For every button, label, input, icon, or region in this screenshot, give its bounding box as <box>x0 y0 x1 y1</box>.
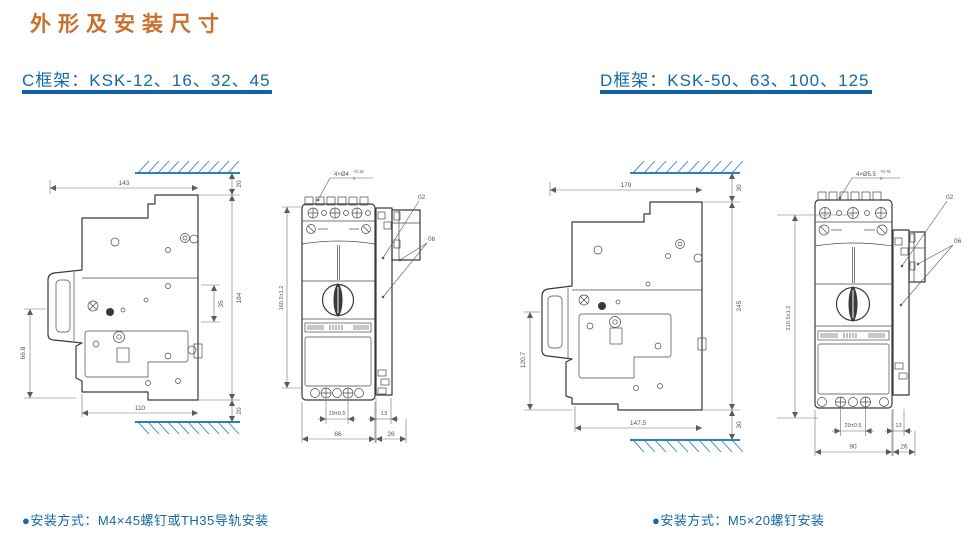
callout-02-label: 02 <box>418 194 426 201</box>
auxiliary-blocks <box>376 208 420 395</box>
d-frame-heading: D框架：KSK-50、63、100、125 <box>600 66 870 91</box>
c-frame-underline <box>22 90 272 94</box>
bottom-terminal-screws <box>818 397 889 407</box>
front-dimensions: 210.5±1.2 29±0.5 13 90 26 <box>777 215 915 456</box>
side-dimensions: 143 20 35 184 66.8 110 20 <box>20 173 243 422</box>
d-frame-underline <box>600 90 872 94</box>
side-dimensions: 179 30 245 120.7 147.5 30 <box>520 173 743 440</box>
setting-strip <box>818 331 889 340</box>
callout-06: 06 <box>382 236 436 298</box>
dim-aux-width: 26 <box>387 431 395 438</box>
dim-front-height: 66.8 <box>20 346 27 359</box>
d-frame-mount-note: ●安装方式：M5×20螺钉安装 <box>652 510 824 529</box>
page-title: 外形及安装尺寸 <box>30 8 226 38</box>
front-dimensions: 160.5±1.2 19±0.5 13 66 26 <box>279 207 406 443</box>
hole-tolerance-lower: 0 <box>353 176 356 181</box>
fixing-screws-row <box>819 225 887 235</box>
breaker-side-outline <box>542 202 706 410</box>
callout-02: 02 <box>382 194 426 259</box>
hole-tolerance-upper: +0.15 <box>353 169 364 174</box>
dim-gap-top: 20 <box>236 180 243 188</box>
c-frame-heading: C框架：KSK-12、16、32、45 <box>22 66 271 91</box>
dim-gap-bottom: 20 <box>236 407 243 415</box>
dim-gap-bottom: 30 <box>736 421 743 429</box>
hole-tolerance-upper: +0.75 <box>880 169 891 174</box>
callout-06-label: 06 <box>428 236 436 243</box>
dim-height: 245 <box>736 300 743 311</box>
wall-hatch-top <box>630 161 743 173</box>
c-frame-front-view: 4×Ø4 +0.15 0 02 06 160.5±1.2 <box>278 148 478 458</box>
wall-hatch-top <box>135 161 240 173</box>
terminal-castellation <box>818 192 881 200</box>
wall-hatch-bottom <box>135 422 240 434</box>
dim-base: 110 <box>135 405 146 412</box>
dim-width: 66 <box>334 431 342 438</box>
dim-clip: 35 <box>218 300 225 308</box>
d-frame-side-view: 179 30 245 120.7 147.5 30 <box>518 138 768 488</box>
fixing-screws-row <box>307 225 371 234</box>
top-terminal-screws <box>308 208 371 218</box>
wall-hatch-bottom <box>630 440 743 452</box>
rotary-handle <box>837 286 870 322</box>
c-frame-side-view: 143 20 35 184 66.8 110 20 <box>18 138 268 478</box>
catalog-page: 外形及安装尺寸 C框架：KSK-12、16、32、45 D框架：KSK-50、6… <box>0 0 979 538</box>
setting-strip <box>305 323 371 332</box>
rotary-handle <box>323 283 354 317</box>
dim-aux: 13 <box>381 411 387 417</box>
dim-front-height: 120.7 <box>520 351 527 368</box>
dim-depth: 143 <box>119 180 130 187</box>
hole-label: 4×Ø4 <box>334 172 350 178</box>
callout-02-label: 02 <box>946 194 954 201</box>
breaker-side-outline <box>48 195 202 400</box>
dim-aux: 13 <box>895 423 901 429</box>
dim-spacing: 29±0.5 <box>844 423 861 429</box>
hole-tolerance-lower: 0 <box>880 176 883 181</box>
callout-06-label: 06 <box>954 238 962 245</box>
c-frame-mount-note: ●安装方式：M4×45螺钉或TH35导轨安装 <box>22 510 269 529</box>
dim-base: 147.5 <box>630 420 647 427</box>
dim-height: 184 <box>236 292 243 303</box>
d-frame-front-view: 4×Ø5.5 +0.75 0 02 06 210.5±1.2 <box>768 148 978 498</box>
breaker-front-body <box>302 197 375 400</box>
dim-height: 160.5±1.2 <box>279 286 285 311</box>
nameplate <box>818 344 889 394</box>
auxiliary-blocks <box>893 230 925 395</box>
dim-gap-top: 30 <box>736 184 743 192</box>
top-terminal-screws <box>820 208 887 219</box>
dim-height: 210.5±1.2 <box>786 306 792 331</box>
hole-label: 4×Ø5.5 <box>856 172 877 178</box>
nameplate <box>305 337 371 386</box>
dim-width: 90 <box>849 444 857 451</box>
hole-callout: 4×Ø4 +0.15 0 <box>317 169 373 201</box>
dim-aux-width: 26 <box>900 444 908 451</box>
breaker-front-body <box>815 192 892 408</box>
dim-depth: 179 <box>621 182 632 189</box>
bottom-terminal-screws <box>311 388 364 398</box>
dim-spacing: 19±0.5 <box>328 411 345 417</box>
